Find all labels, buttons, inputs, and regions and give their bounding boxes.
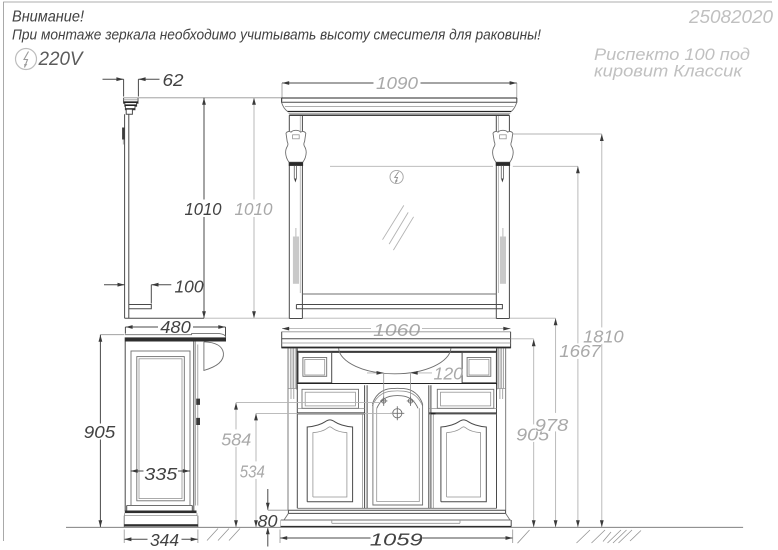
svg-text:1810: 1810 [583, 326, 624, 346]
svg-text:534: 534 [240, 461, 265, 481]
svg-text:кировит Классик: кировит Классик [594, 63, 743, 81]
svg-text:905: 905 [84, 422, 116, 442]
svg-text:1010: 1010 [235, 199, 273, 219]
svg-text:62: 62 [163, 70, 184, 90]
svg-text:220V: 220V [38, 49, 85, 70]
svg-text:Риспекто 100 под: Риспекто 100 под [594, 46, 750, 64]
svg-text:584: 584 [221, 430, 251, 450]
svg-text:1059: 1059 [370, 529, 423, 549]
svg-text:1090: 1090 [376, 73, 418, 93]
svg-text:1010: 1010 [185, 199, 222, 219]
svg-text:344: 344 [150, 530, 179, 550]
svg-text:Внимание!: Внимание! [12, 9, 84, 26]
svg-text:80: 80 [258, 511, 278, 531]
svg-text:При монтаже зеркала необходимо: При монтаже зеркала необходимо учитывать… [12, 27, 542, 44]
svg-text:978: 978 [535, 415, 569, 435]
svg-text:120: 120 [434, 363, 464, 383]
svg-text:100: 100 [175, 277, 204, 297]
svg-text:1060: 1060 [373, 320, 420, 340]
svg-text:335: 335 [144, 464, 177, 484]
svg-text:25082020: 25082020 [688, 7, 773, 27]
svg-text:480: 480 [160, 317, 191, 337]
